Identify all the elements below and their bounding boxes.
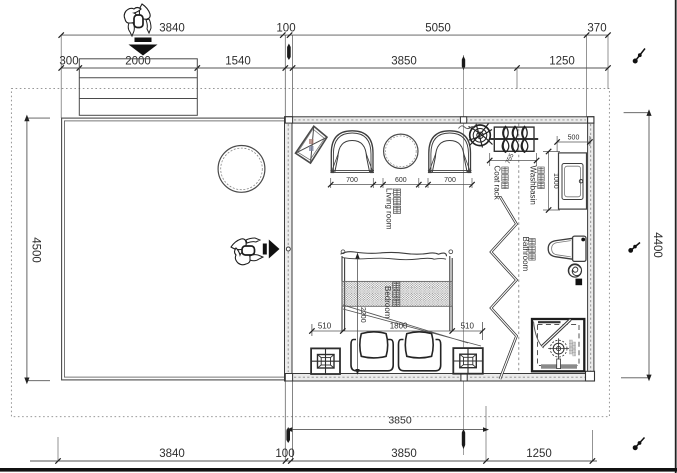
svg-text:Bathroom: Bathroom	[521, 237, 530, 272]
svg-text:1000: 1000	[552, 173, 559, 189]
svg-text:4500: 4500	[30, 237, 42, 263]
svg-text:1250: 1250	[526, 448, 552, 460]
svg-text:Washbasin: Washbasin	[529, 166, 538, 205]
svg-text:3840: 3840	[159, 23, 185, 35]
svg-text:3850: 3850	[391, 448, 417, 460]
svg-text:100: 100	[276, 23, 295, 35]
svg-text:4400: 4400	[651, 232, 663, 258]
svg-text:600: 600	[395, 177, 407, 184]
svg-text:510: 510	[461, 321, 475, 330]
svg-text:Coat rack: Coat rack	[493, 166, 502, 201]
svg-text:2000: 2000	[125, 56, 151, 68]
svg-text:100: 100	[275, 448, 294, 460]
svg-text:Bedroom: Bedroom	[383, 286, 392, 319]
svg-text:3850: 3850	[391, 56, 417, 68]
svg-text:1800: 1800	[390, 321, 408, 330]
svg-text:510: 510	[318, 321, 332, 330]
svg-text:1540: 1540	[225, 56, 251, 68]
svg-text:5050: 5050	[425, 23, 451, 35]
svg-text:700: 700	[444, 177, 456, 184]
svg-text:700: 700	[346, 177, 358, 184]
svg-text:500: 500	[568, 134, 580, 141]
svg-text:1250: 1250	[549, 56, 575, 68]
svg-text:3850: 3850	[388, 415, 412, 427]
svg-text:Living room: Living room	[385, 188, 394, 230]
svg-text:3840: 3840	[159, 448, 185, 460]
svg-text:2200: 2200	[359, 307, 366, 323]
svg-text:300: 300	[59, 56, 78, 68]
svg-text:370: 370	[587, 23, 606, 35]
